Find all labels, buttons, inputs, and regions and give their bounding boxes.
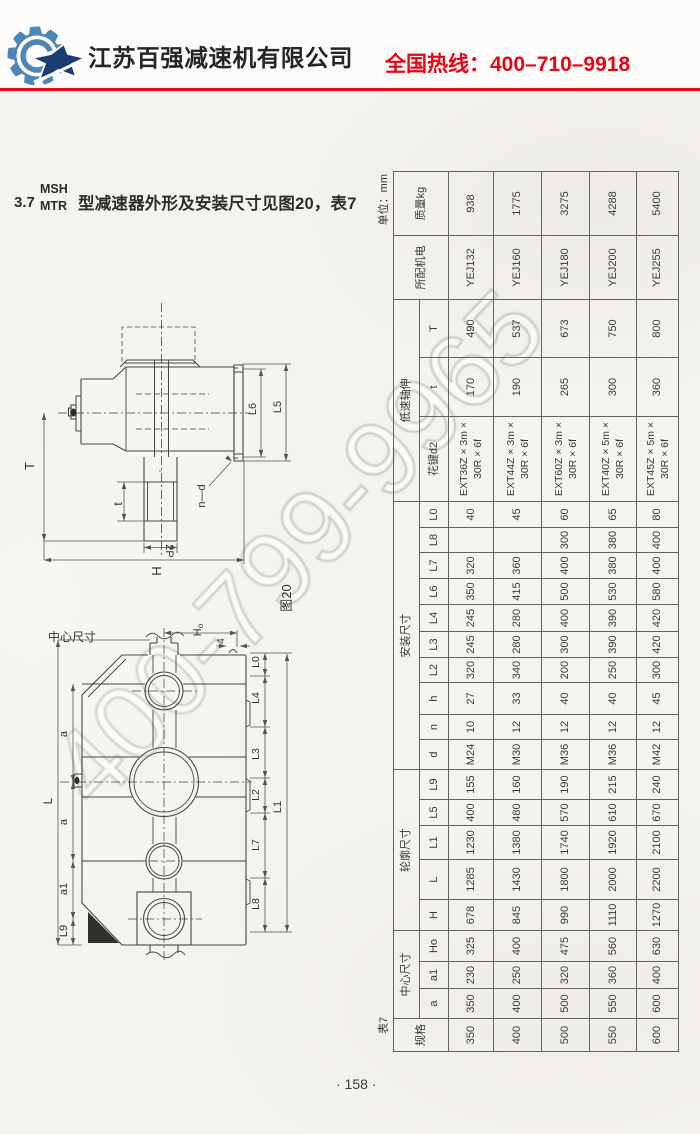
svg-text:4: 4 bbox=[216, 638, 227, 644]
svg-text:L5: L5 bbox=[272, 401, 284, 413]
svg-text:t: t bbox=[111, 502, 125, 506]
svg-text:L3: L3 bbox=[250, 748, 262, 760]
svg-text:L0: L0 bbox=[250, 656, 262, 668]
svg-text:L1: L1 bbox=[272, 801, 284, 813]
svg-text:L4: L4 bbox=[250, 692, 262, 704]
svg-text:2P: 2P bbox=[163, 544, 175, 557]
svg-text:L2: L2 bbox=[250, 789, 262, 801]
svg-text:中心尺寸: 中心尺寸 bbox=[48, 629, 96, 644]
svg-text:a: a bbox=[58, 818, 70, 825]
svg-text:a: a bbox=[58, 730, 70, 737]
svg-text:Ho: Ho bbox=[192, 623, 205, 636]
svg-text:L: L bbox=[41, 797, 55, 804]
svg-text:L7: L7 bbox=[250, 839, 262, 851]
svg-text:L9: L9 bbox=[58, 925, 70, 937]
svg-text:图20: 图20 bbox=[279, 584, 294, 611]
svg-text:T: T bbox=[22, 462, 37, 470]
svg-text:n—d: n—d bbox=[196, 484, 208, 507]
svg-text:L6: L6 bbox=[247, 403, 259, 415]
svg-text:L8: L8 bbox=[250, 898, 262, 910]
svg-text:H: H bbox=[149, 566, 164, 575]
svg-text:a1: a1 bbox=[58, 883, 70, 895]
